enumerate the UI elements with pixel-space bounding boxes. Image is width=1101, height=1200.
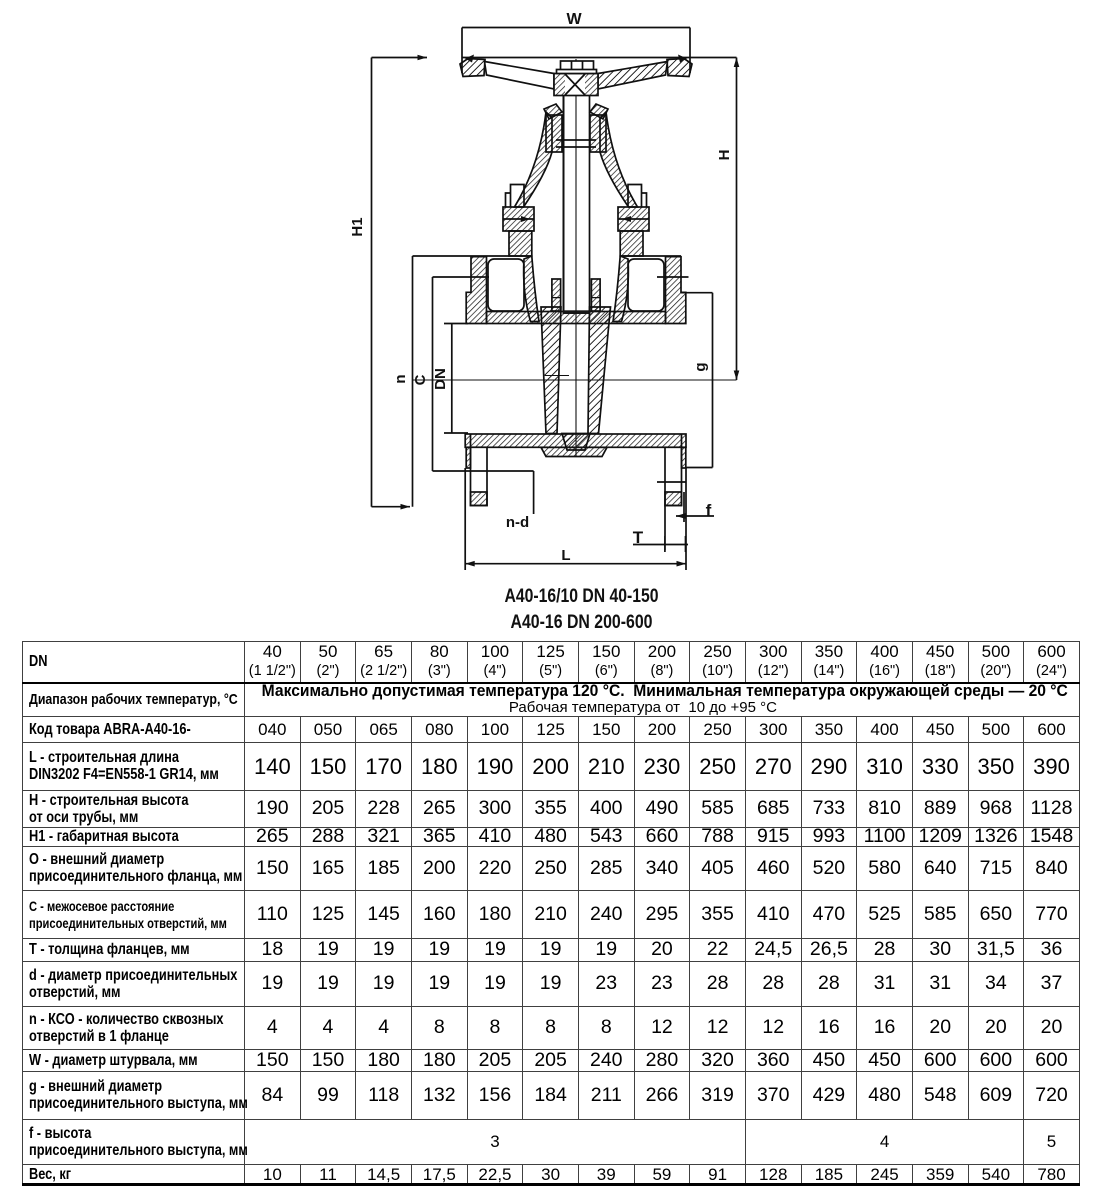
svg-text:g: g bbox=[692, 362, 709, 371]
svg-text:n-d: n-d bbox=[506, 514, 529, 531]
svg-text:A40-16/10 DN 40-150: A40-16/10 DN 40-150 bbox=[505, 586, 659, 607]
svg-text:A40-16 DN 200-600: A40-16 DN 200-600 bbox=[511, 612, 653, 633]
svg-text:H: H bbox=[716, 150, 733, 161]
svg-text:n: n bbox=[392, 374, 409, 383]
svg-text:C: C bbox=[412, 374, 429, 385]
svg-text:W: W bbox=[566, 11, 582, 28]
svg-text:H1: H1 bbox=[349, 217, 366, 236]
svg-text:T: T bbox=[633, 528, 644, 547]
svg-text:f: f bbox=[706, 501, 712, 520]
svg-text:DN: DN bbox=[432, 368, 449, 390]
svg-text:L: L bbox=[561, 547, 570, 564]
